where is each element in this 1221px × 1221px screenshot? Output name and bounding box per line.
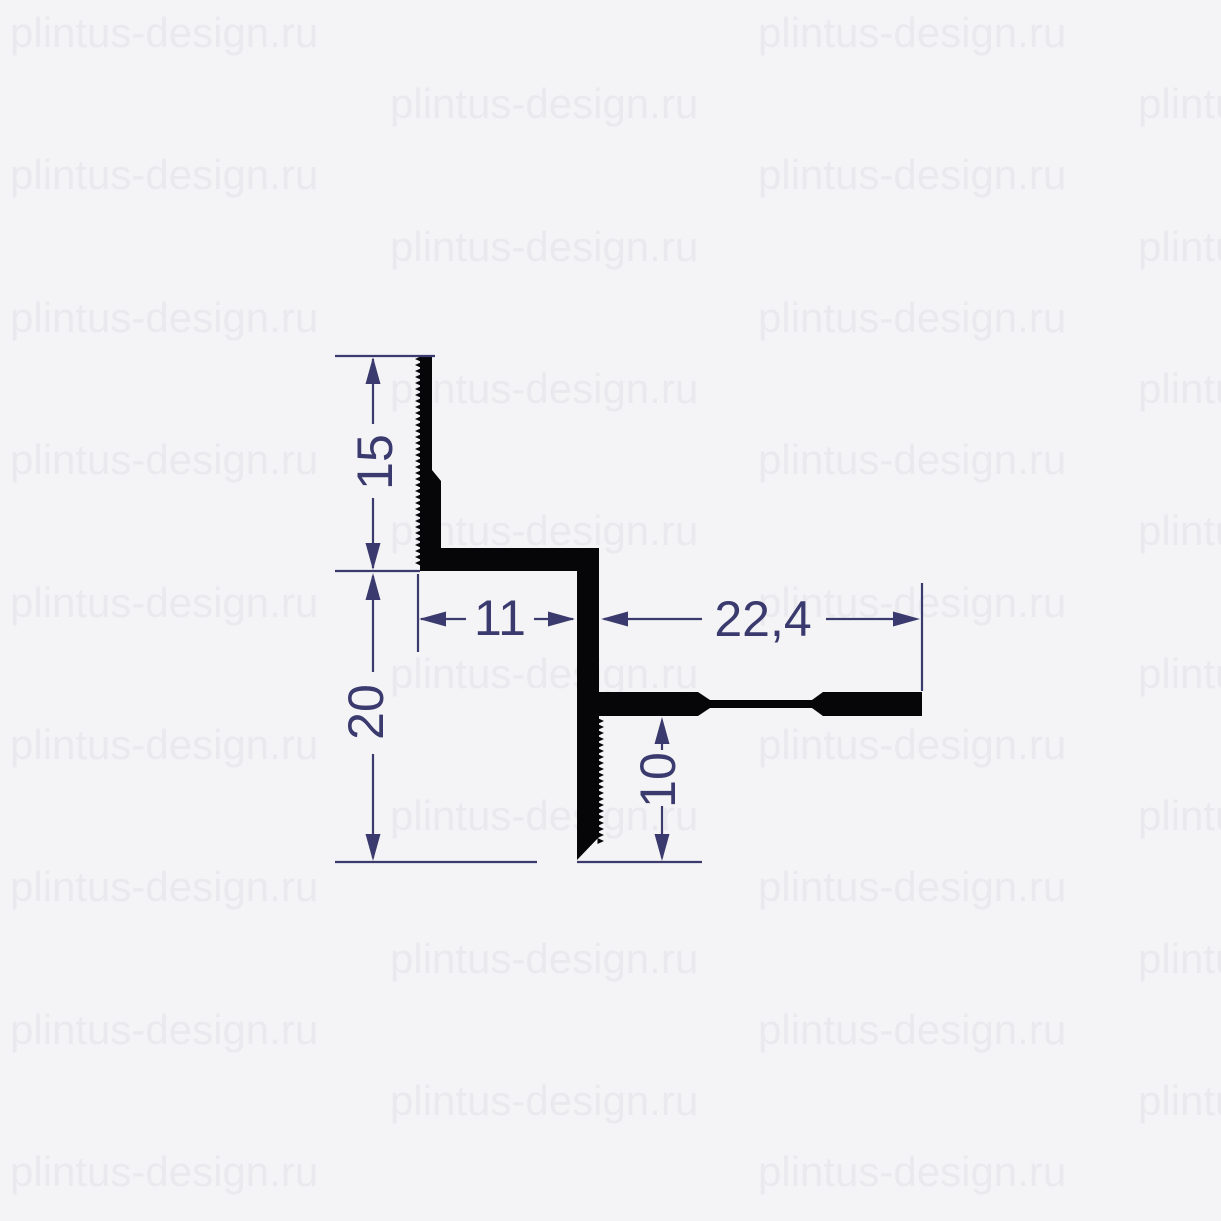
dimension-label-22-4: 22,4 xyxy=(714,590,811,648)
arrow-up-icon xyxy=(366,357,381,384)
arrow-down-icon xyxy=(366,834,381,861)
drawing-canvas: plintus-design.ruplintus-design.ruplintu… xyxy=(0,0,1221,1221)
arrow-down-icon xyxy=(655,834,670,861)
arrow-down-icon xyxy=(366,543,381,570)
dimension-label-15: 15 xyxy=(346,434,404,490)
profile-technical-drawing xyxy=(0,0,1221,1221)
dimension-label-10: 10 xyxy=(629,752,687,808)
serration-left-edge xyxy=(415,356,422,566)
dimension-label-20: 20 xyxy=(337,684,395,740)
arrow-up-icon xyxy=(366,573,381,600)
arrow-up-icon xyxy=(655,717,670,744)
arrow-right-icon xyxy=(548,612,575,627)
arrow-left-icon xyxy=(601,612,628,627)
arrow-left-icon xyxy=(419,612,446,627)
arrow-right-icon xyxy=(893,612,920,627)
serration-right-edge xyxy=(598,718,605,844)
dimension-label-11: 11 xyxy=(474,589,526,647)
